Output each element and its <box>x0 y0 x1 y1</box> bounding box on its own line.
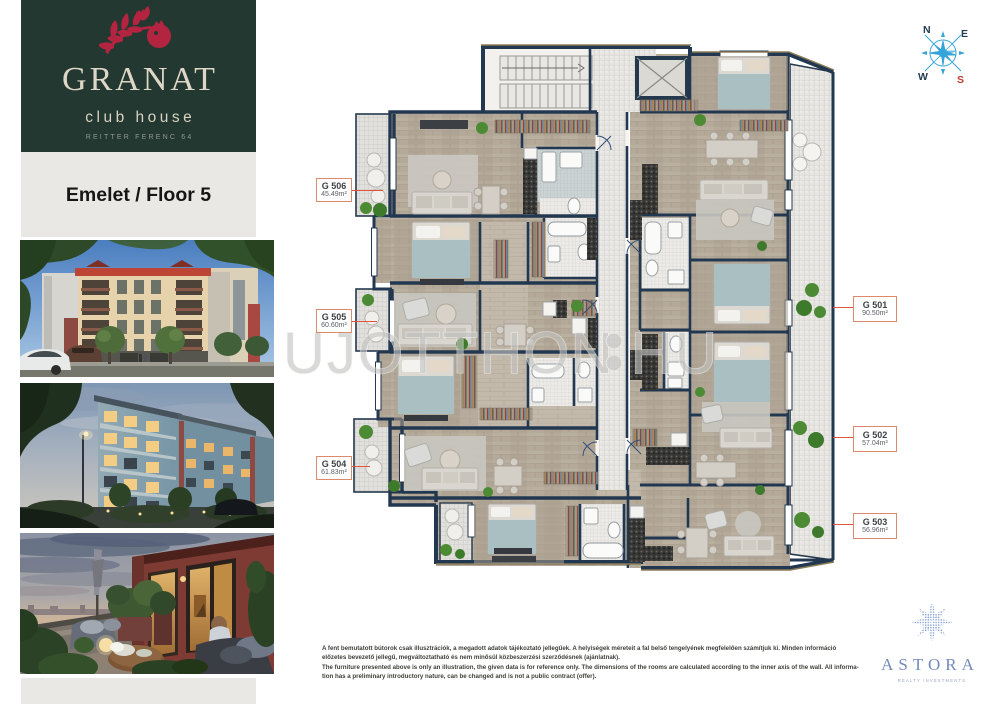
svg-text:W: W <box>918 71 928 83</box>
svg-text:S: S <box>957 74 964 86</box>
svg-text:HU: HU <box>631 321 719 386</box>
svg-text:ASTORA: ASTORA <box>881 655 979 674</box>
svg-text:N: N <box>923 24 931 36</box>
svg-text:REALTY INVESTMENTS: REALTY INVESTMENTS <box>898 678 966 683</box>
svg-text:E: E <box>961 28 968 40</box>
